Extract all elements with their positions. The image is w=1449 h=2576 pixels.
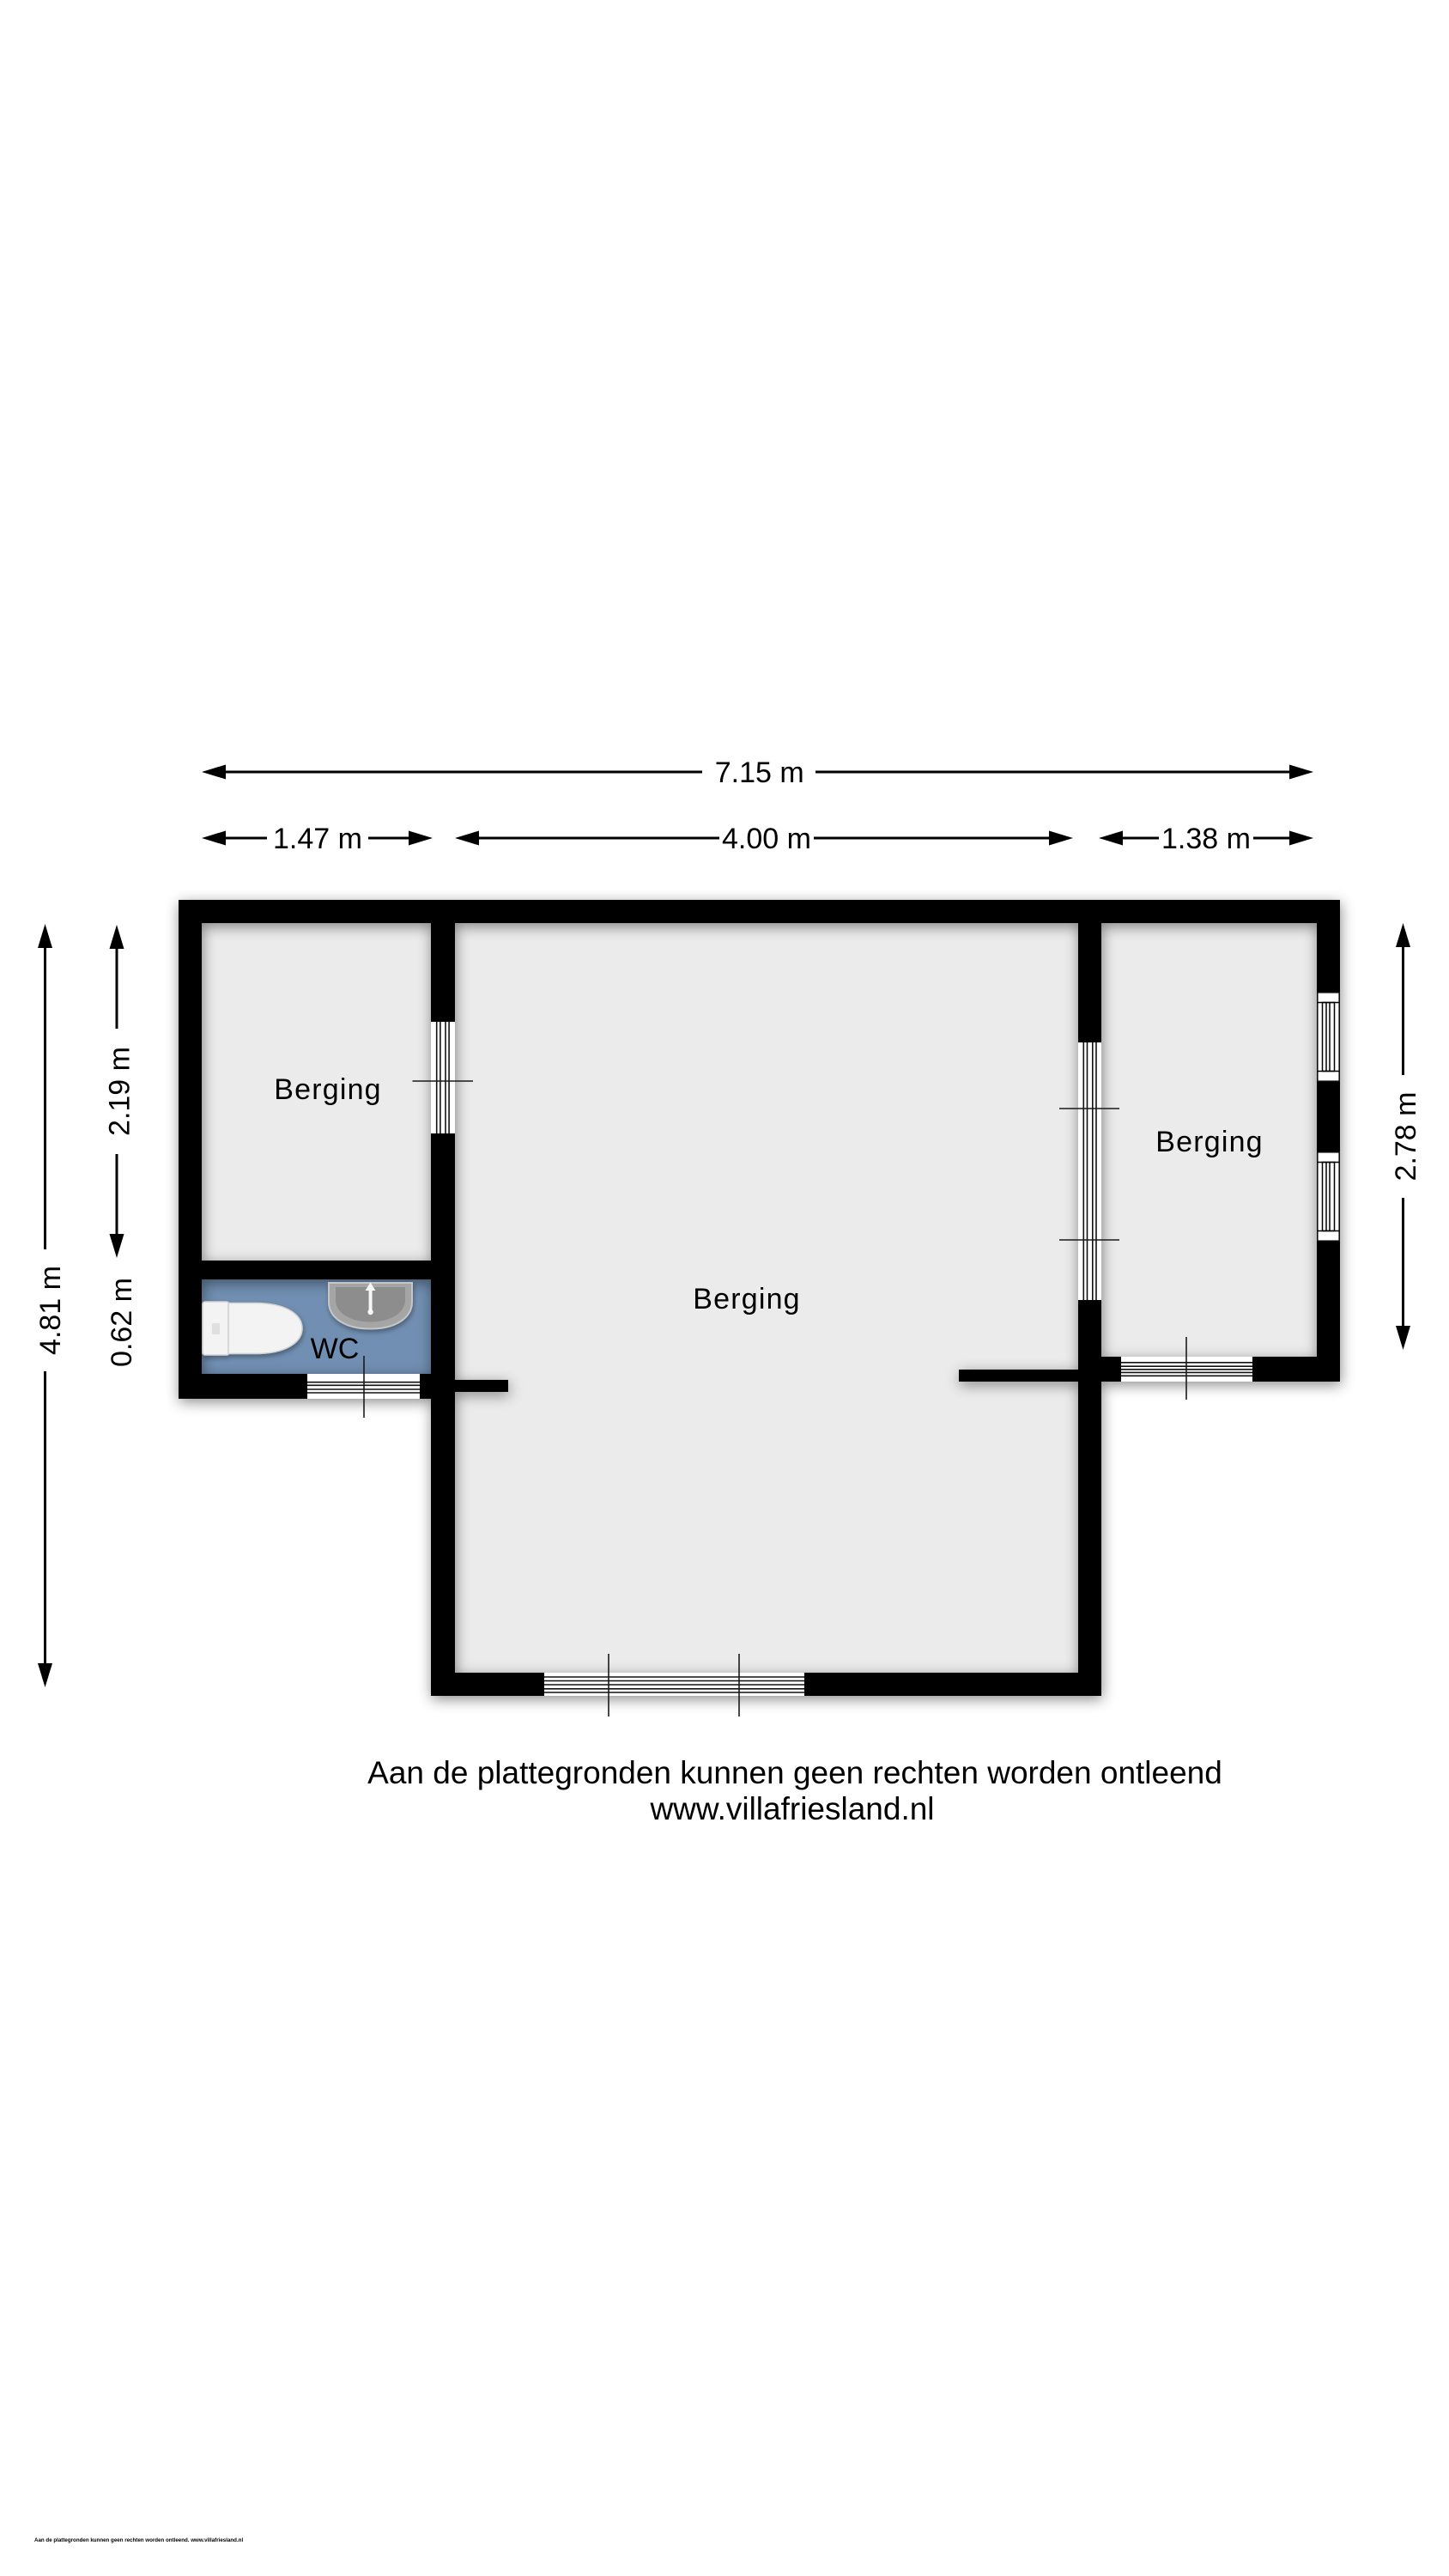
svg-text:Berging: Berging [274,1073,382,1106]
svg-text:Berging: Berging [693,1283,801,1315]
svg-text:2.78 m: 2.78 m [1390,1092,1422,1182]
svg-text:Berging: Berging [1155,1126,1264,1158]
svg-text:7.15 m: 7.15 m [715,756,804,789]
svg-text:www.villafriesland.nl: www.villafriesland.nl [649,1791,934,1826]
svg-text:2.19 m: 2.19 m [104,1047,136,1136]
svg-text:1.47 m: 1.47 m [273,823,362,855]
svg-text:0.62 m: 0.62 m [106,1278,138,1367]
svg-text:1.38 m: 1.38 m [1161,823,1251,855]
svg-text:4.00 m: 4.00 m [722,823,811,855]
svg-text:Aan de plattegronden kunnen ge: Aan de plattegronden kunnen geen rechten… [34,2537,243,2543]
svg-text:4.81 m: 4.81 m [34,1266,67,1355]
svg-text:Aan de plattegronden kunnen ge: Aan de plattegronden kunnen geen rechten… [367,1755,1222,1790]
svg-text:WC: WC [311,1333,360,1365]
